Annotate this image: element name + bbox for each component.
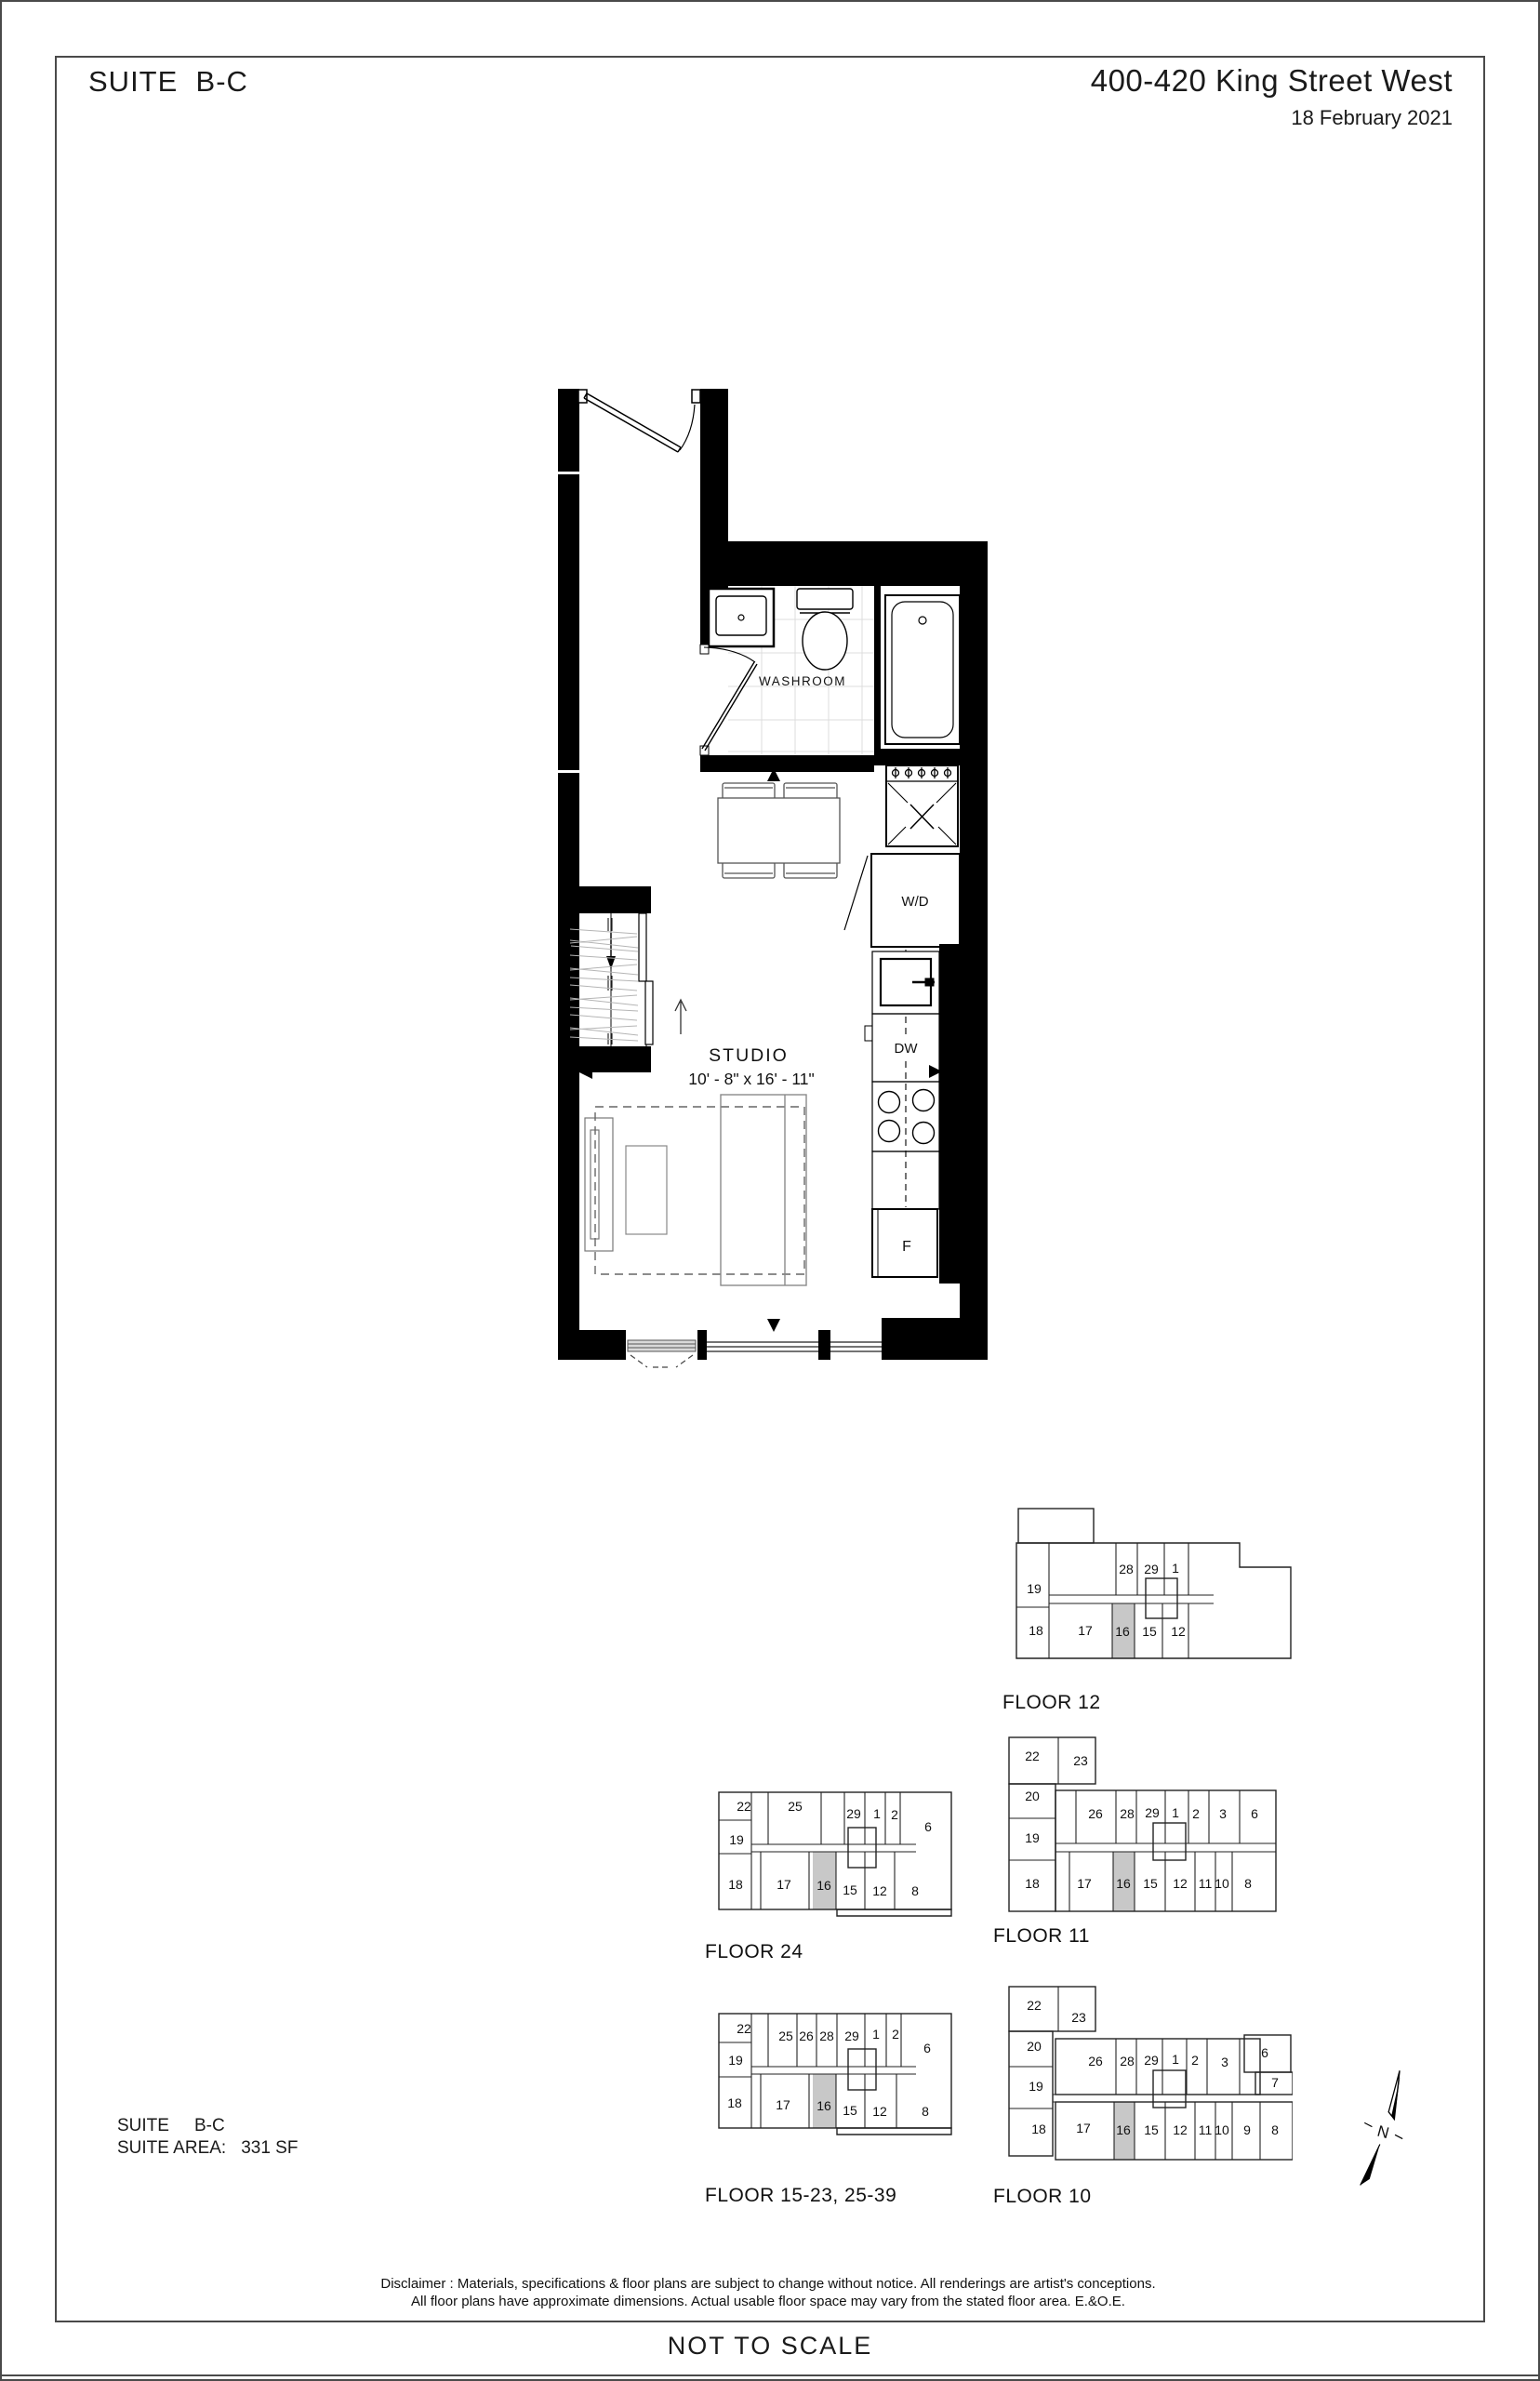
unit-number-26: 26 — [1088, 2054, 1103, 2068]
unit-number-26: 26 — [799, 2029, 814, 2043]
unit-number-8: 8 — [1271, 2122, 1279, 2137]
bathroom-sink — [709, 589, 774, 646]
studio-label: STUDIO — [709, 1045, 789, 1066]
unit-number-1: 1 — [872, 2027, 880, 2042]
entry-arrow — [675, 1000, 686, 1034]
unit-number-18: 18 — [1025, 1876, 1040, 1891]
dishwasher-label: DW — [895, 1041, 919, 1057]
unit-number-1: 1 — [873, 1806, 881, 1821]
suite-info-line1: SUITEB-C — [117, 2115, 298, 2137]
key-plan-floor15_39: 22252628291261918171615128FLOOR 15-23, 2… — [688, 1981, 986, 2251]
unit-number-22: 22 — [1025, 1749, 1040, 1763]
unit-number-10: 10 — [1215, 2122, 1229, 2137]
toilet — [797, 589, 853, 670]
unit-number-12: 12 — [1173, 1876, 1188, 1891]
unit-number-18: 18 — [728, 1877, 743, 1892]
unit-number-29: 29 — [846, 1806, 861, 1821]
unit-number-28: 28 — [1119, 1562, 1134, 1576]
unit-number-12: 12 — [872, 2104, 887, 2119]
unit-number-22: 22 — [1027, 1998, 1042, 2013]
suite-info-line2: SUITE AREA:331 SF — [117, 2137, 298, 2160]
washroom-door — [700, 645, 757, 755]
unit-number-3: 3 — [1221, 2055, 1228, 2069]
unit-number-28: 28 — [1120, 1806, 1135, 1821]
unit-number-17: 17 — [1078, 1623, 1093, 1638]
unit-number-12: 12 — [1173, 2122, 1188, 2137]
key-plan-floor10: 22232019182628291236717161512111098FLOOR… — [976, 1953, 1293, 2232]
unit-number-12: 12 — [1171, 1624, 1186, 1639]
unit-number-17: 17 — [777, 1877, 791, 1892]
studio-dimensions: 10' - 8" x 16' - 11" — [688, 1070, 815, 1088]
unit-number-7: 7 — [1271, 2075, 1279, 2090]
unit-number-23: 23 — [1071, 2010, 1086, 2025]
unit-number-16: 16 — [1115, 1624, 1130, 1639]
unit-number-20: 20 — [1025, 1789, 1040, 1803]
unit-number-10: 10 — [1215, 1876, 1229, 1891]
key-plan-floor11: 222320191826282912361716151211108FLOOR 1… — [976, 1702, 1283, 1962]
unit-number-16: 16 — [1116, 1876, 1131, 1891]
suite-title: SUITE B-C — [88, 65, 248, 99]
unit-number-19: 19 — [1029, 2079, 1043, 2094]
unit-number-3: 3 — [1219, 1806, 1227, 1821]
entry-door — [578, 390, 700, 452]
north-label: N — [1375, 2122, 1391, 2143]
unit-number-16: 16 — [1116, 2122, 1131, 2137]
unit-number-22: 22 — [737, 1799, 751, 1814]
unit-number-2: 2 — [892, 2027, 899, 2042]
unit-number-15: 15 — [843, 1882, 857, 1897]
bottom-rule — [0, 2374, 1540, 2376]
kitchen-sink — [872, 951, 939, 1014]
unit-number-6: 6 — [1261, 2045, 1268, 2060]
unit-number-28: 28 — [1120, 2054, 1135, 2068]
unit-number-19: 19 — [729, 1832, 744, 1847]
bathtub — [885, 595, 960, 744]
sofa-bed — [721, 1095, 806, 1285]
dining-table — [718, 783, 840, 878]
unit-number-18: 18 — [1031, 2122, 1046, 2136]
unit-number-25: 25 — [788, 1799, 803, 1814]
fridge-label: F — [902, 1239, 911, 1255]
unit-number-8: 8 — [911, 1883, 919, 1898]
unit-number-22: 22 — [737, 2021, 751, 2036]
key-plan-floor12: 19181716151228291FLOOR 12 — [986, 1470, 1321, 1730]
key-plan-label: FLOOR 10 — [993, 2186, 1092, 2207]
unit-number-12: 12 — [872, 1883, 887, 1898]
unit-number-2: 2 — [1191, 2053, 1199, 2068]
suite-info: SUITEB-C SUITE AREA:331 SF — [117, 2115, 298, 2160]
unit-number-20: 20 — [1027, 2039, 1042, 2054]
unit-number-18: 18 — [1029, 1623, 1043, 1638]
unit-number-19: 19 — [1025, 1830, 1040, 1845]
disclaimer-line1: Disclaimer : Materials, specifications &… — [55, 2275, 1481, 2293]
section-marker-down — [767, 1319, 780, 1332]
unit-number-29: 29 — [1144, 1562, 1159, 1576]
side-table — [626, 1146, 667, 1234]
unit-number-25: 25 — [778, 2029, 793, 2043]
north-arrow-icon: N — [1337, 2051, 1430, 2209]
unit-number-26: 26 — [1088, 1806, 1103, 1821]
unit-number-2: 2 — [891, 1807, 898, 1822]
unit-number-15: 15 — [1144, 2122, 1159, 2137]
unit-number-8: 8 — [1244, 1876, 1252, 1891]
unit-number-23: 23 — [1073, 1753, 1088, 1768]
unit-number-15: 15 — [1143, 1876, 1158, 1891]
unit-number-16: 16 — [816, 2098, 831, 2113]
key-plan-label: FLOOR 24 — [705, 1941, 803, 1962]
floorplan-page: { "header": { "suite_title": "SUITE B-C"… — [0, 0, 1540, 2381]
utility-closet — [886, 765, 958, 846]
unit-number-2: 2 — [1192, 1806, 1200, 1821]
unit-number-18: 18 — [727, 2095, 742, 2110]
unit-number-6: 6 — [923, 2041, 931, 2055]
unit-number-19: 19 — [728, 2053, 743, 2068]
unit-number-9: 9 — [1243, 2122, 1251, 2137]
windows — [707, 1342, 882, 1351]
floor-plan: WASHROOM W/D DW F — [553, 386, 990, 1374]
washer-dryer-label: W/D — [901, 894, 928, 910]
unit-number-15: 15 — [1142, 1624, 1157, 1639]
unit-number-17: 17 — [1076, 2121, 1091, 2135]
plan-date: 18 February 2021 — [1291, 106, 1453, 130]
key-plan-label: FLOOR 11 — [993, 1925, 1090, 1947]
unit-number-1: 1 — [1172, 1805, 1179, 1820]
disclaimer: Disclaimer : Materials, specifications &… — [55, 2275, 1481, 2310]
balcony-door — [628, 1340, 696, 1367]
unit-number-29: 29 — [1144, 2053, 1159, 2068]
key-plan-floor24: 2225291261918171615128FLOOR 24 — [688, 1758, 986, 2000]
unit-number-29: 29 — [1145, 1805, 1160, 1820]
disclaimer-line2: All floor plans have approximate dimensi… — [55, 2293, 1481, 2310]
unit-number-6: 6 — [1251, 1806, 1258, 1821]
scale-note: NOT TO SCALE — [0, 2332, 1540, 2361]
key-plan-label: FLOOR 15-23, 25-39 — [705, 2185, 896, 2206]
unit-number-17: 17 — [776, 2097, 790, 2112]
building-address: 400-420 King Street West — [1091, 63, 1453, 99]
unit-number-6: 6 — [924, 1819, 932, 1834]
unit-number-19: 19 — [1027, 1581, 1042, 1596]
unit-number-8: 8 — [922, 2104, 929, 2119]
unit-number-17: 17 — [1077, 1876, 1092, 1891]
unit-number-28: 28 — [819, 2029, 834, 2043]
unit-number-16: 16 — [816, 1878, 831, 1893]
unit-number-15: 15 — [843, 2103, 857, 2118]
unit-number-29: 29 — [844, 2029, 859, 2043]
unit-number-11: 11 — [1199, 2122, 1213, 2137]
unit-number-11: 11 — [1199, 1876, 1213, 1891]
unit-number-1: 1 — [1172, 2052, 1179, 2067]
closet-hangers — [570, 929, 638, 1041]
tv-unit — [585, 1118, 613, 1251]
unit-number-1: 1 — [1172, 1561, 1179, 1576]
washroom-label: WASHROOM — [759, 674, 846, 688]
